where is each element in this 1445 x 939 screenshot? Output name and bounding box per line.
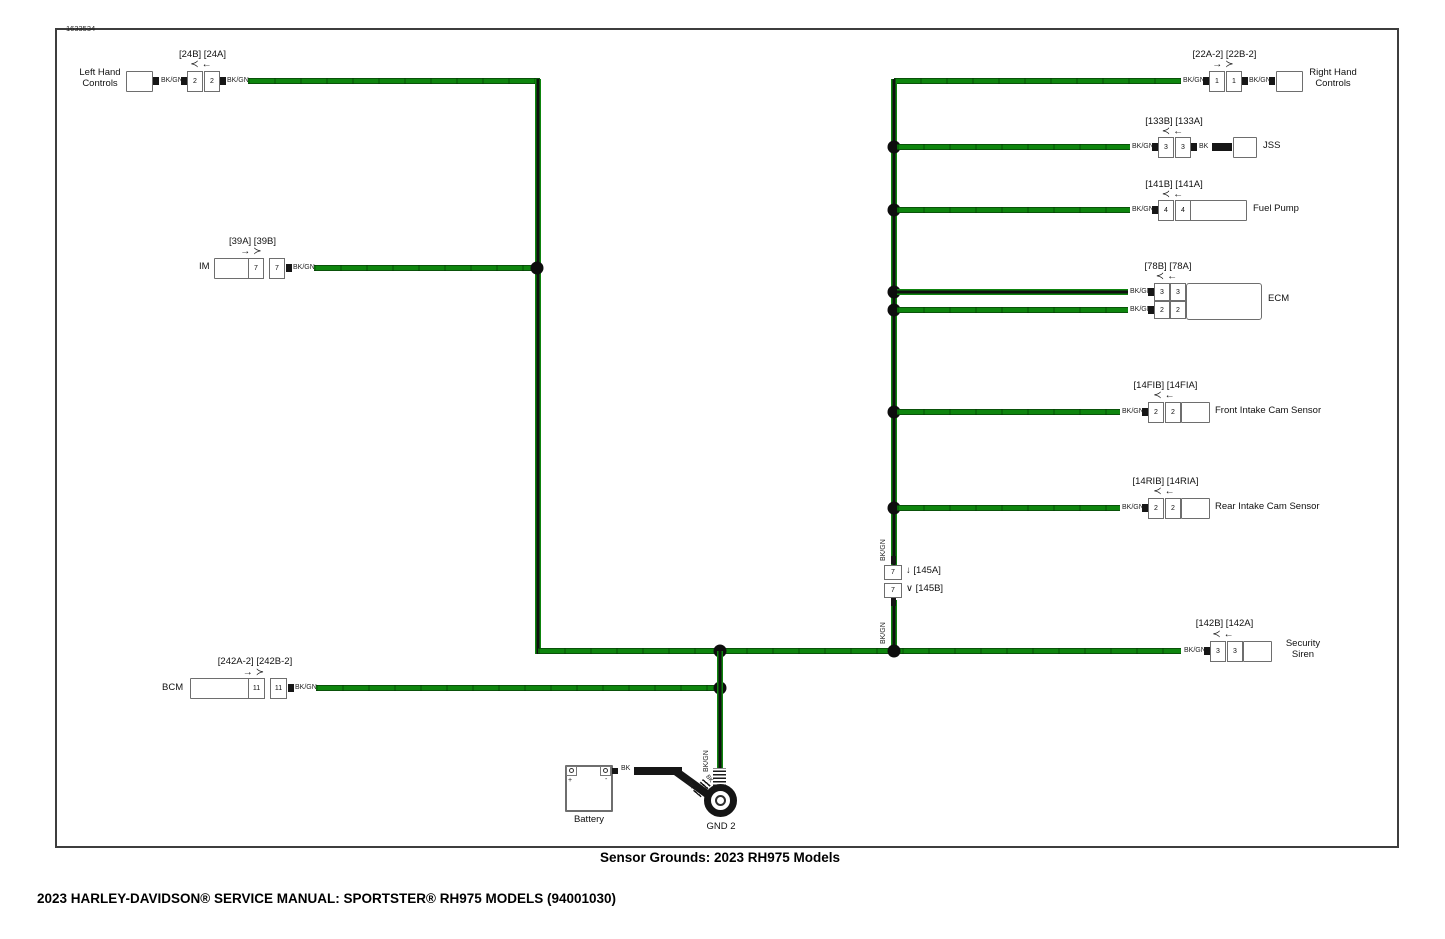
junction-dot xyxy=(531,262,544,275)
connector-pin: 4 xyxy=(1158,200,1174,221)
figure-number: 1633534 xyxy=(66,24,95,33)
wire-color-label: BK/GN xyxy=(161,77,183,84)
bkgn-wire xyxy=(897,505,1120,511)
connector-pin: 11 xyxy=(248,678,265,699)
component-label: IM xyxy=(199,262,210,273)
bkgn-wire xyxy=(897,307,1128,313)
component-label: Right Hand Controls xyxy=(1305,68,1361,90)
wire-color-label: BK/GN xyxy=(1122,504,1144,511)
wire-stub xyxy=(288,684,294,692)
direction-arrows-icon: ≺← xyxy=(1113,390,1218,401)
manual-footer-title: 2023 HARLEY-DAVIDSON® SERVICE MANUAL: SP… xyxy=(37,891,616,906)
diagram-frame xyxy=(55,28,1399,848)
wire-color-label: BK/GN xyxy=(295,684,317,691)
wire-stub xyxy=(220,77,226,85)
component-label: Front Intake Cam Sensor xyxy=(1215,406,1321,417)
connector-pin: 2 xyxy=(1148,498,1164,519)
connector-refs: [242A-2] [242B-2] xyxy=(200,656,310,667)
direction-arrows-icon: ≺← xyxy=(1118,271,1218,282)
component-label: Battery xyxy=(558,815,620,826)
connector-pin: 2 xyxy=(1165,402,1181,423)
connector-pin: 7 xyxy=(884,565,902,580)
connector-pin: 3 xyxy=(1227,641,1243,662)
wire-stub xyxy=(612,768,618,774)
polarity-negative-label: - xyxy=(605,776,607,783)
connector-refs: [142B] [142A] xyxy=(1172,618,1277,629)
connector-ref-a: ↓ [145A] xyxy=(906,565,941,576)
socket-arrow-icon: ∨ xyxy=(906,583,913,594)
bkgn-wire xyxy=(538,648,1181,654)
wiring-diagram-page: 1633534 [24B] [24A] ≺← Left Hand Control… xyxy=(0,0,1445,939)
wire-color-label: BK xyxy=(1199,143,1208,150)
connector-housing xyxy=(1186,283,1262,320)
component-label: BCM xyxy=(162,683,183,694)
direction-arrows-icon: ≺← xyxy=(1113,486,1218,497)
bkgn-wire xyxy=(316,685,718,691)
connector-ref-b: ∨ [145B] xyxy=(906,583,943,594)
wire-stub xyxy=(153,77,159,85)
bkgn-wire xyxy=(897,144,1130,150)
connector-pin: 11 xyxy=(270,678,287,699)
wire-color-label: BK/GN xyxy=(1249,77,1271,84)
wire-color-label: BK/GN xyxy=(1183,77,1205,84)
component-label: Fuel Pump xyxy=(1253,204,1299,215)
wire-color-label: BK/GN xyxy=(1122,408,1144,415)
direction-arrows-icon: ≺← xyxy=(1172,629,1277,640)
connector-pin: 3 xyxy=(1175,137,1191,158)
wire-stub xyxy=(286,264,292,272)
connector-housing xyxy=(1233,137,1257,158)
wire-stub xyxy=(1242,77,1248,85)
direction-arrows-icon: →≻ xyxy=(200,667,310,678)
connector-housing xyxy=(1181,402,1210,423)
connector-housing xyxy=(1181,498,1210,519)
component-label: Rear Intake Cam Sensor xyxy=(1215,502,1320,513)
wire-stub xyxy=(1269,77,1275,85)
terminal-circle-icon xyxy=(569,768,574,773)
wire-stub xyxy=(891,598,896,606)
connector-housing xyxy=(126,71,153,92)
connector-pin: 1 xyxy=(1226,71,1242,92)
down-arrow-icon: ↓ xyxy=(906,565,911,576)
connector-pin: 7 xyxy=(884,583,902,598)
connector-housing xyxy=(1190,200,1247,221)
connector-pin: 2 xyxy=(1148,402,1164,423)
bkgn-wire xyxy=(894,78,1181,84)
bkgn-wire xyxy=(897,409,1120,415)
wire-color-label: BK xyxy=(621,765,630,772)
wire-color-label: BK/GN xyxy=(880,606,887,644)
direction-arrows-icon: ≺← xyxy=(155,59,250,70)
connector-pin: 3 xyxy=(1154,283,1170,301)
connector-pin: 7 xyxy=(269,258,285,279)
connector-housing xyxy=(190,678,250,699)
connector-pin: 3 xyxy=(1170,283,1186,301)
connector-pin: 7 xyxy=(248,258,264,279)
direction-arrows-icon: →≻ xyxy=(205,246,300,257)
ground-label: GND 2 xyxy=(692,822,750,833)
wire-stub xyxy=(891,556,896,564)
diagram-caption: Sensor Grounds: 2023 RH975 Models xyxy=(440,850,1000,865)
bkgn-wire xyxy=(314,265,535,271)
connector-pin: 2 xyxy=(204,71,220,92)
connector-pin: 2 xyxy=(1170,301,1186,319)
connector-pin: 2 xyxy=(187,71,203,92)
wire-color-label: BK/GN xyxy=(1132,206,1154,213)
terminal-circle-icon xyxy=(603,768,608,773)
wire-color-label: BK/GN xyxy=(227,77,249,84)
bk-wire xyxy=(1212,143,1232,151)
polarity-positive-label: + xyxy=(568,777,572,784)
junction-dot xyxy=(888,645,901,658)
bkgn-wire xyxy=(248,78,540,84)
component-label: JSS xyxy=(1263,141,1280,152)
component-label: ECM xyxy=(1268,294,1289,305)
direction-arrows-icon: →≻ xyxy=(1172,59,1277,70)
connector-pin: 4 xyxy=(1175,200,1191,221)
wire-color-label: BK/GN xyxy=(1184,647,1206,654)
connector-pin: 3 xyxy=(1158,137,1174,158)
ground-ring-hole xyxy=(715,795,726,806)
bkgn-trunk-wire-left xyxy=(535,79,541,654)
bkgn-wire-to-ground xyxy=(717,651,723,768)
component-label: Security Siren xyxy=(1276,639,1330,661)
component-label: Left Hand Controls xyxy=(76,68,124,90)
connector-housing xyxy=(1276,71,1303,92)
wire-color-label: BK/GN xyxy=(1132,143,1154,150)
wire-stub xyxy=(1191,143,1197,151)
direction-arrows-icon: ≺← xyxy=(1124,126,1224,137)
direction-arrows-icon: ≺← xyxy=(1124,189,1224,200)
connector-pin: 2 xyxy=(1165,498,1181,519)
connector-housing xyxy=(1243,641,1272,662)
wire-color-label: BK/GN xyxy=(880,523,887,561)
wire-color-label: BK/GN xyxy=(703,738,710,772)
wire-color-label: BK/GN xyxy=(293,264,315,271)
bkgn-wire xyxy=(897,289,1128,295)
connector-pin: 2 xyxy=(1154,301,1170,319)
bkgn-wire xyxy=(897,207,1130,213)
connector-pin: 3 xyxy=(1210,641,1226,662)
connector-pin: 1 xyxy=(1209,71,1225,92)
